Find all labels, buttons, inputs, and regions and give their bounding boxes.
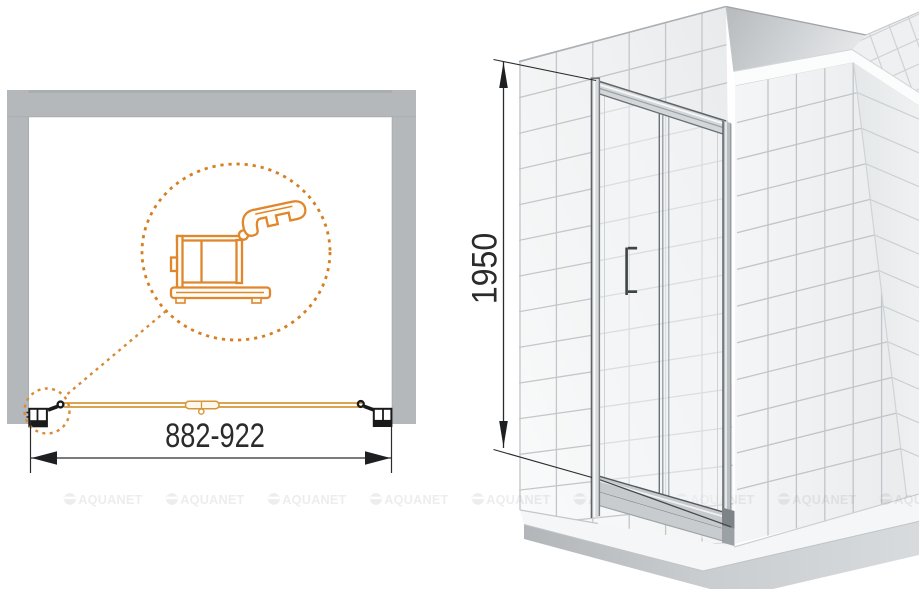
svg-text:AQUANET: AQUANET: [78, 493, 142, 507]
svg-text:1950: 1950: [466, 233, 505, 305]
svg-text:AQUANET: AQUANET: [384, 493, 448, 507]
svg-text:AQUANET: AQUANET: [792, 493, 856, 507]
svg-text:AQUANET: AQUANET: [894, 493, 919, 507]
svg-text:AQUANET: AQUANET: [282, 493, 346, 507]
svg-text:882-922: 882-922: [165, 416, 265, 455]
svg-text:AQUANET: AQUANET: [180, 493, 244, 507]
svg-text:AQUANET: AQUANET: [486, 493, 550, 507]
